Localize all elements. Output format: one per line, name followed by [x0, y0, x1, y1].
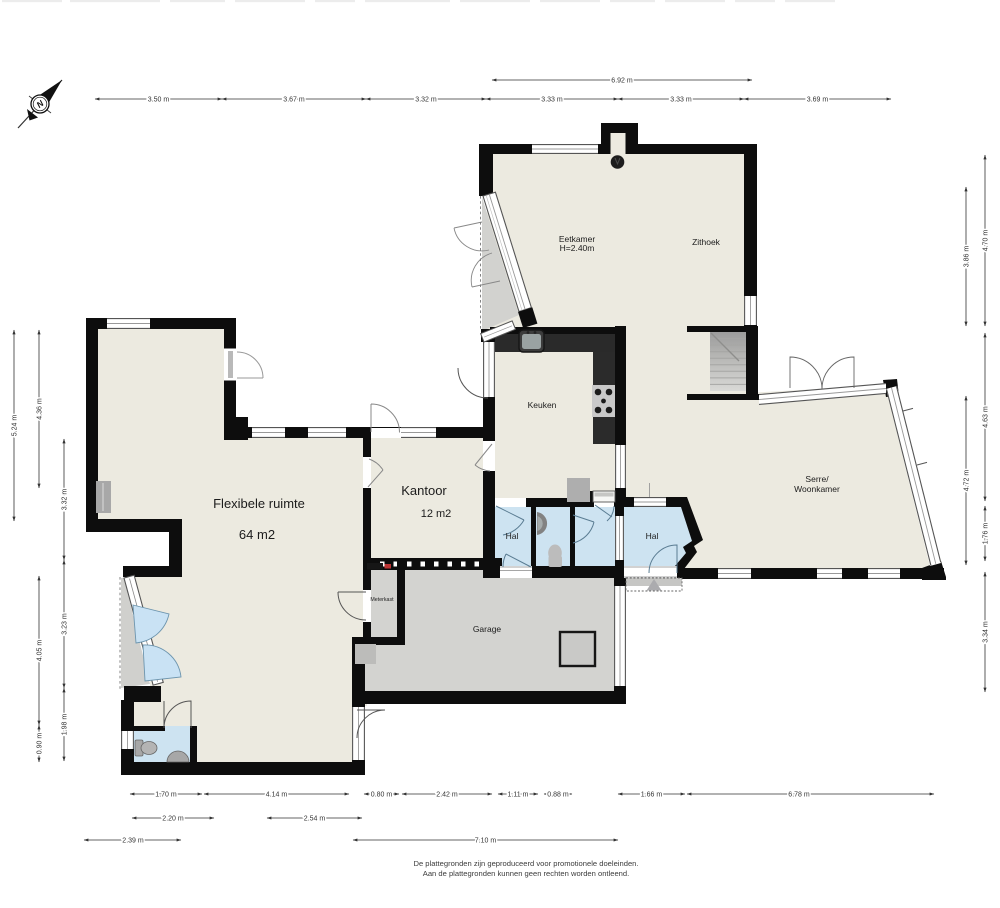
svg-text:7.10 m: 7.10 m [475, 837, 497, 844]
svg-text:Hal: Hal [646, 531, 659, 541]
svg-text:5.24 m: 5.24 m [11, 415, 18, 437]
svg-text:Serre/: Serre/ [805, 474, 829, 484]
svg-text:1.66 m: 1.66 m [641, 791, 663, 798]
svg-text:12 m2: 12 m2 [421, 508, 452, 520]
svg-text:6.92 m: 6.92 m [611, 77, 633, 84]
svg-text:4.05 m: 4.05 m [36, 640, 43, 662]
svg-text:0.90 m: 0.90 m [36, 733, 43, 755]
svg-text:1.11 m: 1.11 m [508, 791, 529, 798]
svg-text:0.88 m: 0.88 m [547, 791, 569, 798]
svg-text:0.80 m: 0.80 m [371, 791, 393, 798]
svg-text:3.33 m: 3.33 m [670, 96, 692, 103]
svg-text:4.36 m: 4.36 m [36, 398, 43, 420]
svg-text:De plattegronden zijn geproduc: De plattegronden zijn geproduceerd voor … [413, 859, 638, 868]
svg-text:2.39 m: 2.39 m [122, 837, 144, 844]
svg-text:1.70 m: 1.70 m [155, 791, 177, 798]
svg-text:3.32 m: 3.32 m [61, 489, 68, 511]
svg-text:Flexibele ruimte: Flexibele ruimte [213, 496, 305, 511]
svg-text:H=2.40m: H=2.40m [560, 243, 595, 253]
svg-text:3.50 m: 3.50 m [148, 96, 170, 103]
svg-text:3.86 m: 3.86 m [963, 246, 970, 268]
svg-text:Aan de plattegronden kunnen ge: Aan de plattegronden kunnen geen rechten… [423, 869, 629, 878]
svg-text:Hal: Hal [506, 531, 519, 541]
svg-text:2.54 m: 2.54 m [304, 815, 326, 822]
svg-text:Woonkamer: Woonkamer [794, 484, 840, 494]
svg-text:1.98 m: 1.98 m [61, 714, 68, 736]
svg-text:64 m2: 64 m2 [239, 527, 275, 542]
svg-text:4.70 m: 4.70 m [982, 230, 989, 252]
svg-text:4.72 m: 4.72 m [963, 470, 970, 492]
svg-text:Keuken: Keuken [528, 400, 557, 410]
svg-text:3.67 m: 3.67 m [283, 96, 305, 103]
svg-text:Meterkast: Meterkast [370, 597, 394, 603]
svg-text:Garage: Garage [473, 624, 502, 634]
svg-text:3.33 m: 3.33 m [541, 96, 563, 103]
svg-text:Kantoor: Kantoor [401, 483, 447, 498]
svg-text:2.20 m: 2.20 m [162, 815, 184, 822]
svg-text:1.76 m: 1.76 m [982, 523, 989, 545]
svg-text:3.32 m: 3.32 m [415, 96, 437, 103]
svg-text:3.23 m: 3.23 m [61, 613, 68, 635]
svg-text:Zithoek: Zithoek [692, 237, 721, 247]
svg-text:3.69 m: 3.69 m [807, 96, 829, 103]
svg-text:4.63 m: 4.63 m [982, 406, 989, 428]
svg-text:3.34 m: 3.34 m [982, 621, 989, 643]
svg-text:2.42 m: 2.42 m [436, 791, 458, 798]
svg-text:4.14 m: 4.14 m [266, 791, 288, 798]
svg-text:6.78 m: 6.78 m [788, 791, 810, 798]
